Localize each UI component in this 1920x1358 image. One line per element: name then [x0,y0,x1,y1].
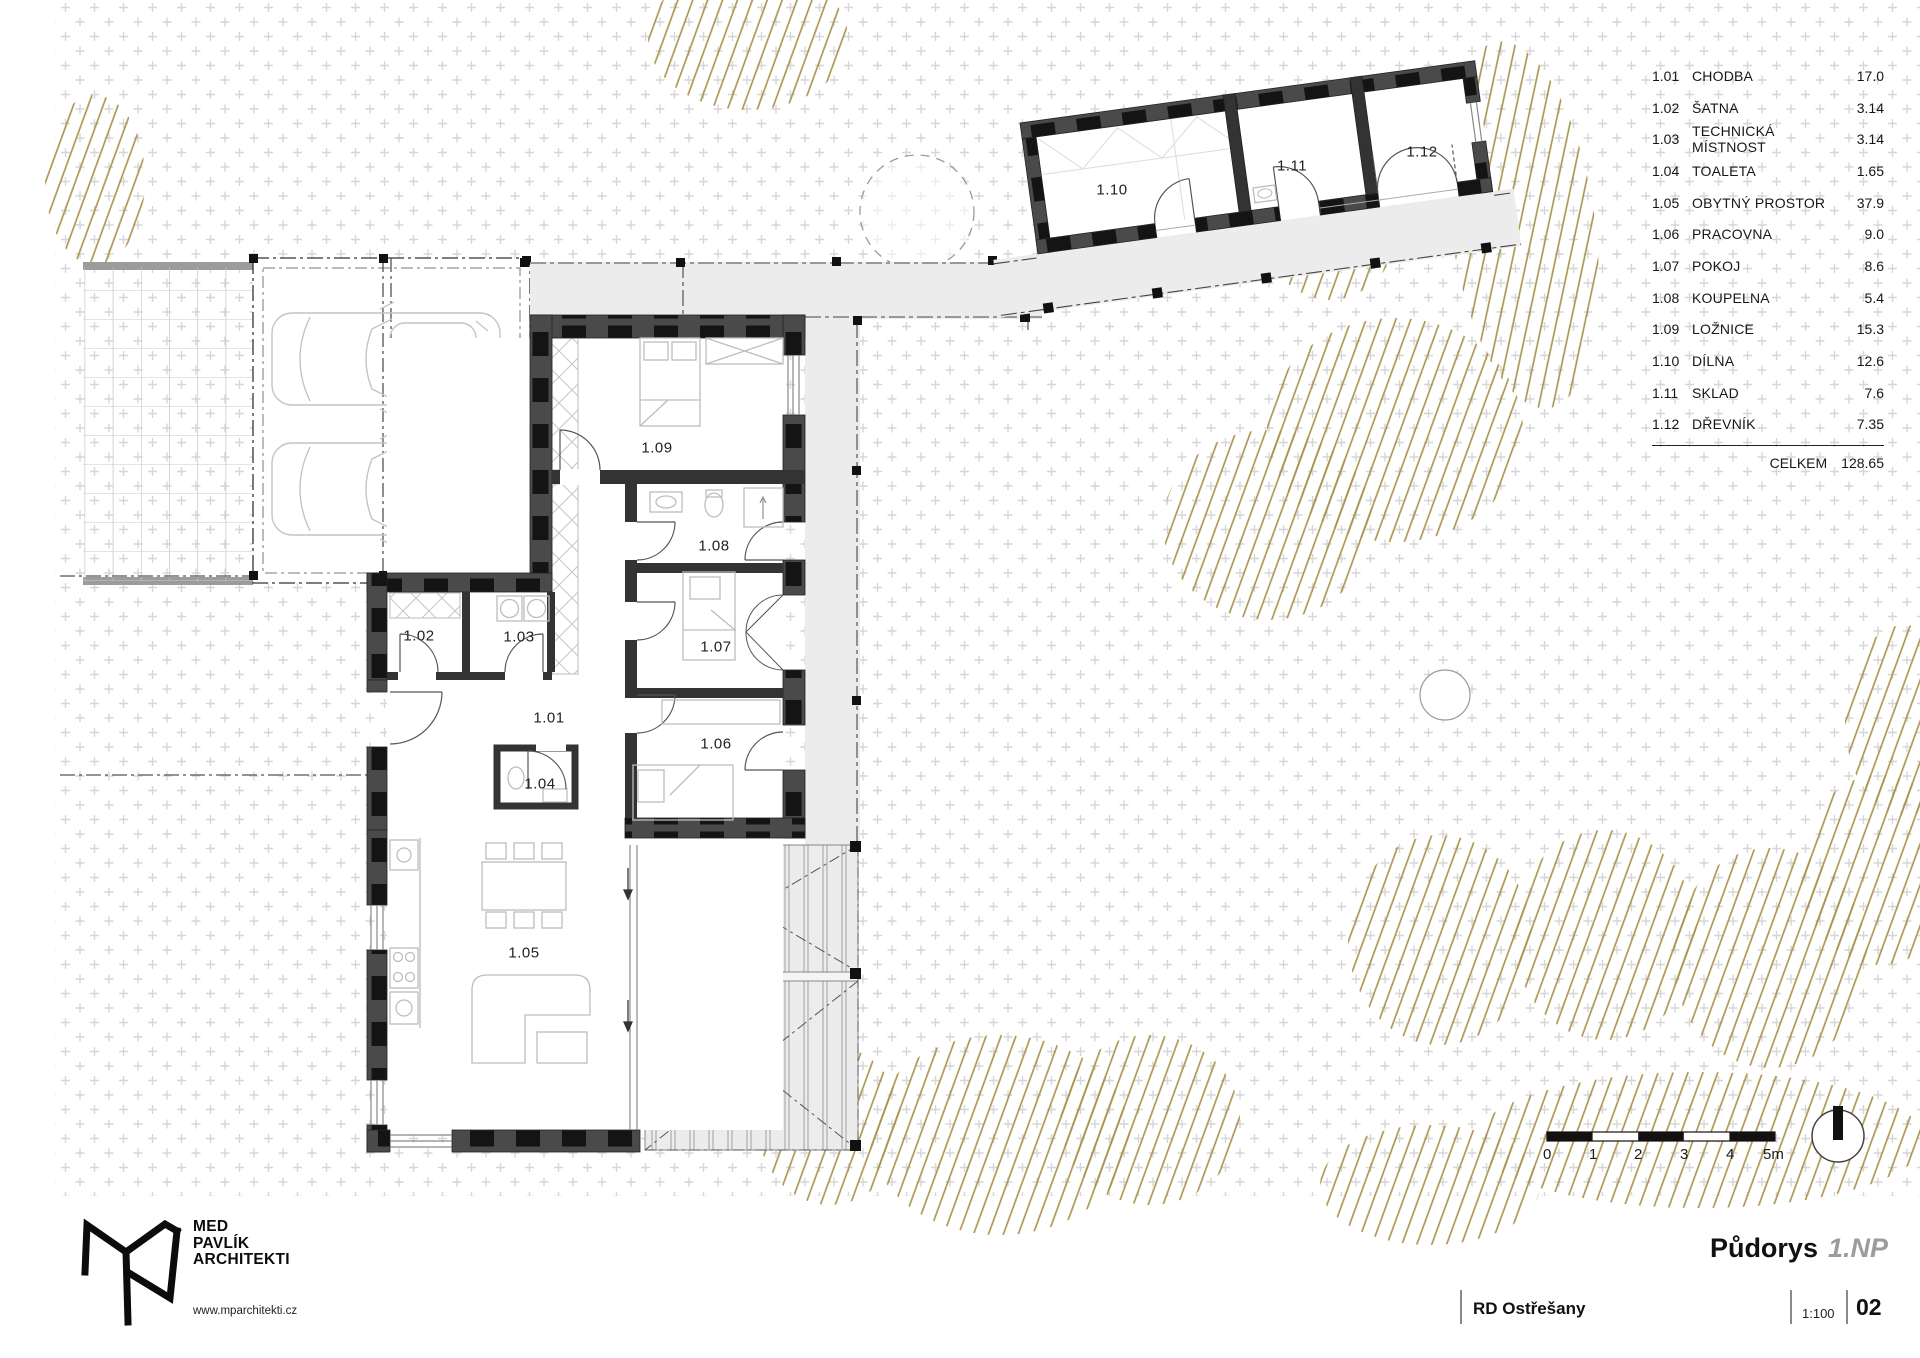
logo-line-3: ARCHITEKTI [193,1252,290,1269]
room-label-1-02: 1.02 [403,628,434,645]
room-label-1-09: 1.09 [641,440,672,457]
scale-tick-0: 0 [1543,1146,1551,1163]
legend-row: 1.06PRACOVNA9.0 [1652,218,1884,250]
legend-row: 1.08KOUPELNA5.4 [1652,282,1884,314]
legend-row: 1.12DŘEVNÍK7.35 [1652,409,1884,441]
project-name: RD Ostřešany [1473,1299,1585,1319]
room-label-1-07: 1.07 [700,639,731,656]
legend-row: 1.11SKLAD7.6 [1652,377,1884,409]
legend-total-row: CELKEM 128.65 [1652,445,1884,471]
tree-outline-small [1420,670,1470,720]
satna-wardrobe [390,593,460,618]
site-plan-drawing [0,0,1920,1358]
drawing-title: Půdorys1.NP [1580,1233,1888,1264]
architect-logo-text: MED PAVLÍK ARCHITEKTI [193,1219,290,1269]
bedroom-wardrobe [552,338,578,470]
room-legend-table: 1.01CHODBA17.0 1.02ŠATNA3.14 1.03TECHNIC… [1652,60,1884,471]
room-label-1-03: 1.03 [503,629,534,646]
room-label-1-04: 1.04 [524,776,555,793]
titleblock-divider [1846,1290,1848,1324]
scale-tick-5m: 5m [1763,1146,1784,1163]
legend-total-value: 128.65 [1841,455,1884,471]
legend-row: 1.05OBYTNÝ PROSTOR37.9 [1652,187,1884,219]
titleblock-divider [1460,1290,1462,1324]
architect-website: www.mparchitekti.cz [193,1305,297,1317]
hall-wardrobe [552,484,578,674]
scale-tick-3: 3 [1680,1146,1688,1163]
room-label-1-01: 1.01 [533,710,564,727]
scale-bar [1547,1132,1775,1141]
main-house [367,315,805,1152]
room-label-1-12: 1.12 [1406,144,1437,161]
driveway-grid [84,267,252,581]
legend-row: 1.01CHODBA17.0 [1652,60,1884,92]
room-label-1-11: 1.11 [1277,158,1307,175]
legend-total-label: CELKEM [1770,455,1828,471]
tree-outline-dashed [860,155,974,269]
room-label-1-06: 1.06 [700,736,731,753]
sheet-number: 02 [1856,1294,1882,1321]
logo-line-2: PAVLÍK [193,1236,290,1253]
legend-row: 1.04TOALETA1.65 [1652,155,1884,187]
room-label-1-05: 1.05 [508,945,539,962]
scale-tick-1: 1 [1589,1146,1597,1163]
legend-row: 1.07POKOJ8.6 [1652,250,1884,282]
drawing-title-text: Půdorys [1710,1233,1818,1263]
scale-tick-2: 2 [1634,1146,1642,1163]
legend-row: 1.10DÍLNA12.6 [1652,345,1884,377]
floor-plan-sheet: 1.01 1.02 1.03 1.04 1.05 1.06 1.07 1.08 … [0,0,1920,1358]
drawing-phase: 1.NP [1828,1233,1888,1263]
room-label-1-08: 1.08 [698,538,729,555]
legend-row: 1.03TECHNICKÁ MÍSTNOST3.14 [1652,123,1884,155]
logo-line-1: MED [193,1219,290,1236]
room-label-1-10: 1.10 [1096,182,1127,199]
legend-row: 1.09LOŽNICE15.3 [1652,314,1884,346]
titleblock-divider [1790,1290,1792,1324]
scale-tick-4: 4 [1726,1146,1734,1163]
drawing-scale: 1:100 [1802,1306,1835,1321]
legend-row: 1.02ŠATNA3.14 [1652,92,1884,124]
